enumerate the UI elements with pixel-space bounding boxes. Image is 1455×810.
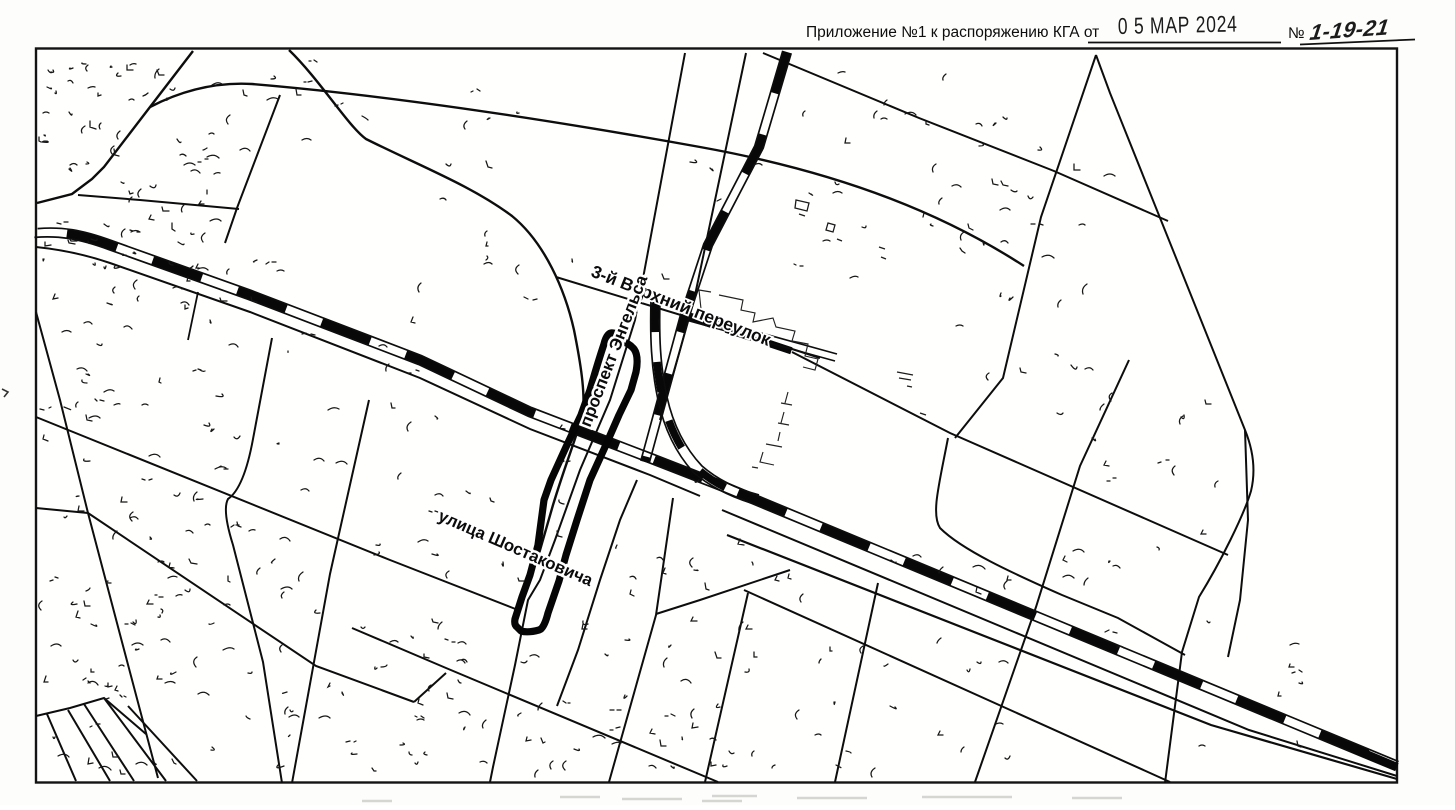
svg-text:Приложение №1 к распоряжению К: Приложение №1 к распоряжению КГА от <box>806 24 1099 41</box>
svg-text:0 5 МАР 2024: 0 5 МАР 2024 <box>1118 12 1238 39</box>
svg-text:№: № <box>1288 25 1305 42</box>
